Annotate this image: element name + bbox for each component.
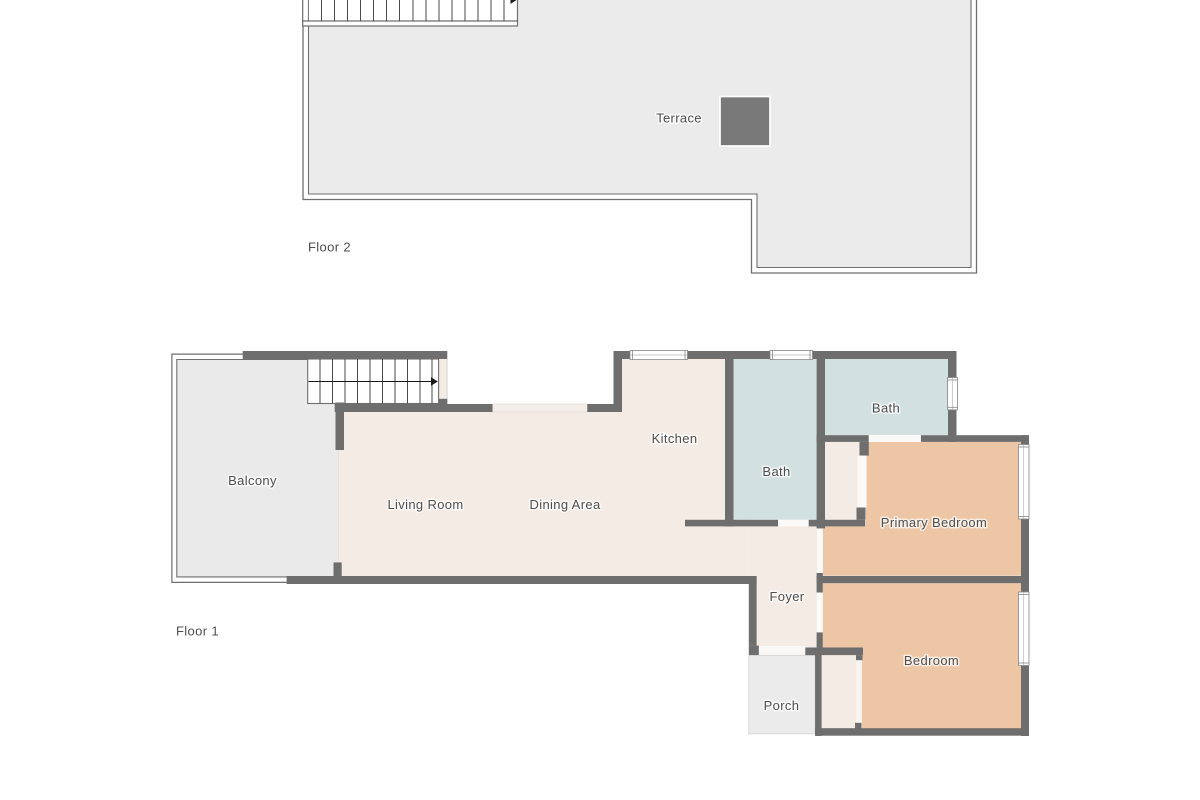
svg-text:Bath: Bath	[872, 401, 900, 416]
svg-text:Kitchen: Kitchen	[652, 431, 698, 446]
svg-text:Floor 2: Floor 2	[308, 240, 351, 255]
svg-text:Primary Bedroom: Primary Bedroom	[881, 515, 987, 530]
svg-text:Bedroom: Bedroom	[904, 653, 959, 668]
svg-text:Foyer: Foyer	[770, 589, 805, 604]
svg-text:Bath: Bath	[762, 464, 790, 479]
svg-text:Balcony: Balcony	[228, 473, 277, 488]
svg-text:Living Room: Living Room	[387, 497, 463, 512]
svg-text:Floor 1: Floor 1	[176, 624, 219, 639]
svg-text:Dining Area: Dining Area	[529, 497, 600, 512]
svg-text:Terrace: Terrace	[656, 111, 702, 126]
svg-text:Porch: Porch	[764, 698, 800, 713]
